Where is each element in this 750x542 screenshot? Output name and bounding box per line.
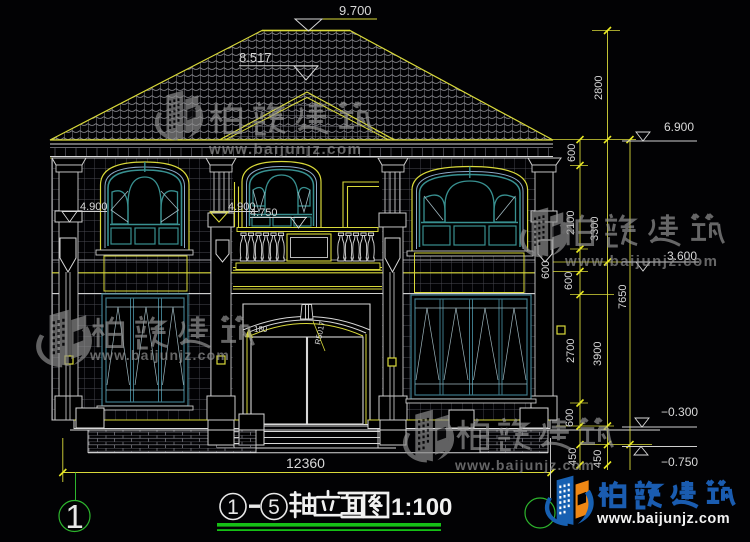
svg-text:2700: 2700 [565, 339, 577, 363]
svg-text:600: 600 [563, 272, 575, 290]
svg-text:2800: 2800 [593, 76, 605, 100]
svg-text:5: 5 [268, 496, 280, 519]
svg-text:www.baijunjz.com: www.baijunjz.com [89, 347, 230, 363]
svg-text:9.700: 9.700 [339, 3, 372, 18]
svg-text:www.baijunjz.com: www.baijunjz.com [596, 511, 730, 527]
svg-text:8.517: 8.517 [239, 50, 272, 65]
svg-text:600: 600 [566, 144, 578, 162]
svg-text:3900: 3900 [592, 342, 604, 366]
svg-text:600: 600 [564, 409, 576, 427]
svg-text:www.baijunjz.com: www.baijunjz.com [564, 253, 718, 270]
svg-text:−0.750: −0.750 [661, 455, 698, 469]
svg-text:www.baijunjz.com: www.baijunjz.com [208, 141, 362, 158]
svg-text:1: 1 [227, 496, 239, 519]
svg-text:180: 180 [254, 325, 268, 334]
svg-text:600: 600 [540, 261, 552, 279]
svg-text:−0.300: −0.300 [661, 405, 698, 419]
svg-text:1:100: 1:100 [391, 494, 452, 521]
svg-text:www.baijunjz.com: www.baijunjz.com [454, 457, 595, 473]
svg-text:7650: 7650 [617, 285, 629, 309]
svg-text:12360: 12360 [286, 455, 325, 471]
svg-text:1: 1 [65, 498, 83, 535]
svg-text:6.900: 6.900 [664, 120, 694, 134]
